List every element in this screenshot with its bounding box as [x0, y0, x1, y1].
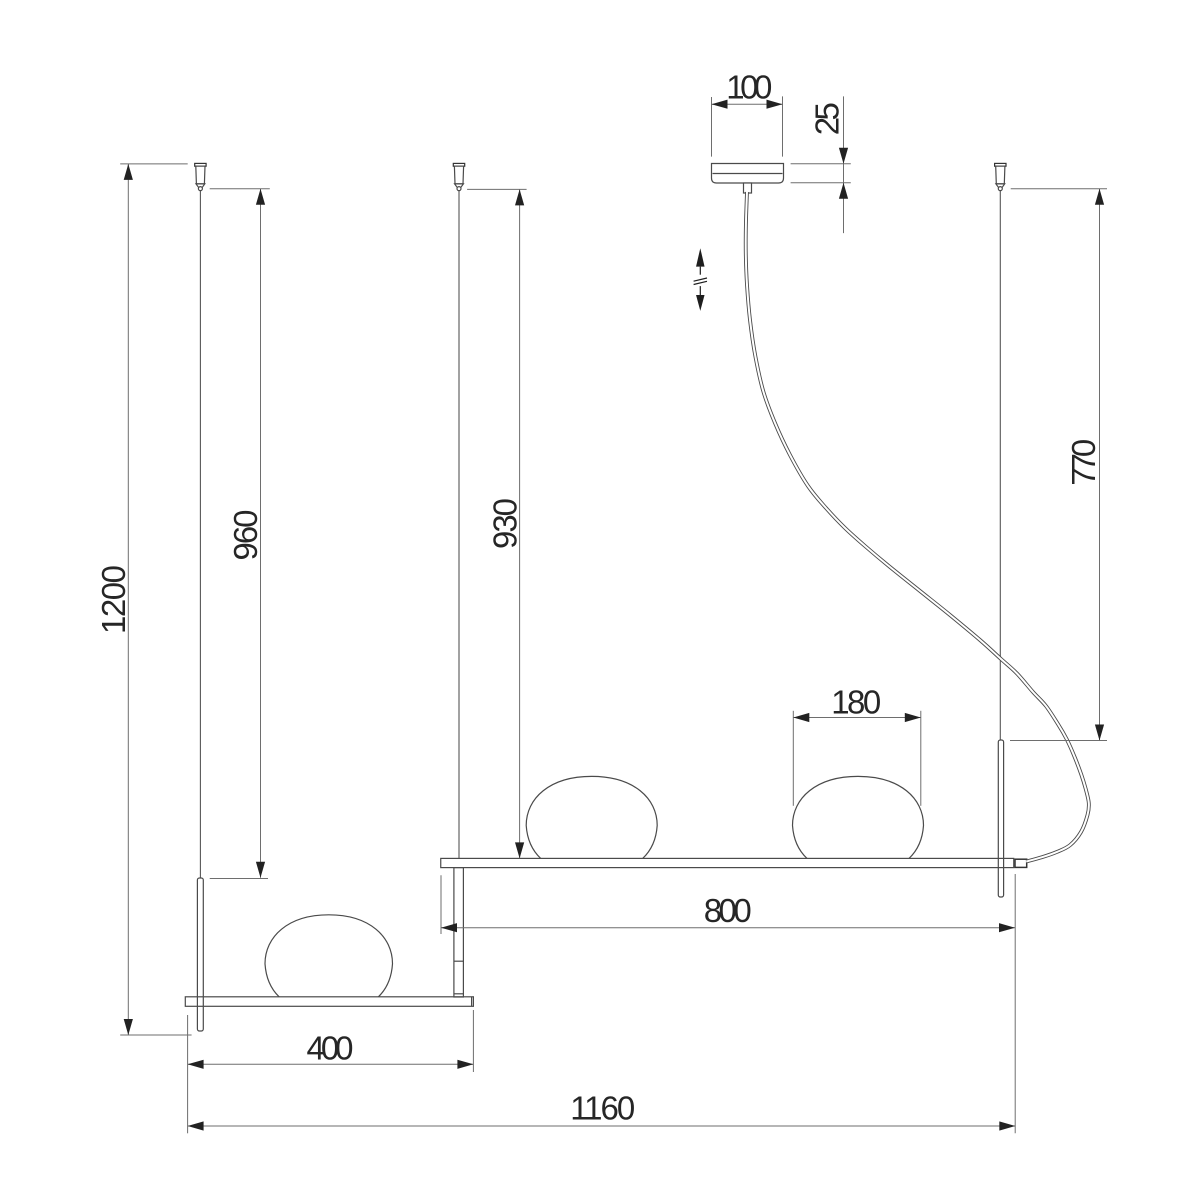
- svg-text:1160: 1160: [570, 1090, 635, 1127]
- svg-text:770: 770: [1065, 439, 1102, 486]
- svg-text:930: 930: [487, 498, 524, 549]
- svg-text:1200: 1200: [95, 565, 132, 634]
- svg-text:800: 800: [704, 892, 752, 929]
- svg-text:100: 100: [726, 68, 772, 105]
- svg-text:25: 25: [809, 102, 846, 135]
- svg-text:960: 960: [227, 510, 264, 561]
- svg-text:180: 180: [831, 683, 881, 720]
- svg-text:400: 400: [307, 1030, 354, 1067]
